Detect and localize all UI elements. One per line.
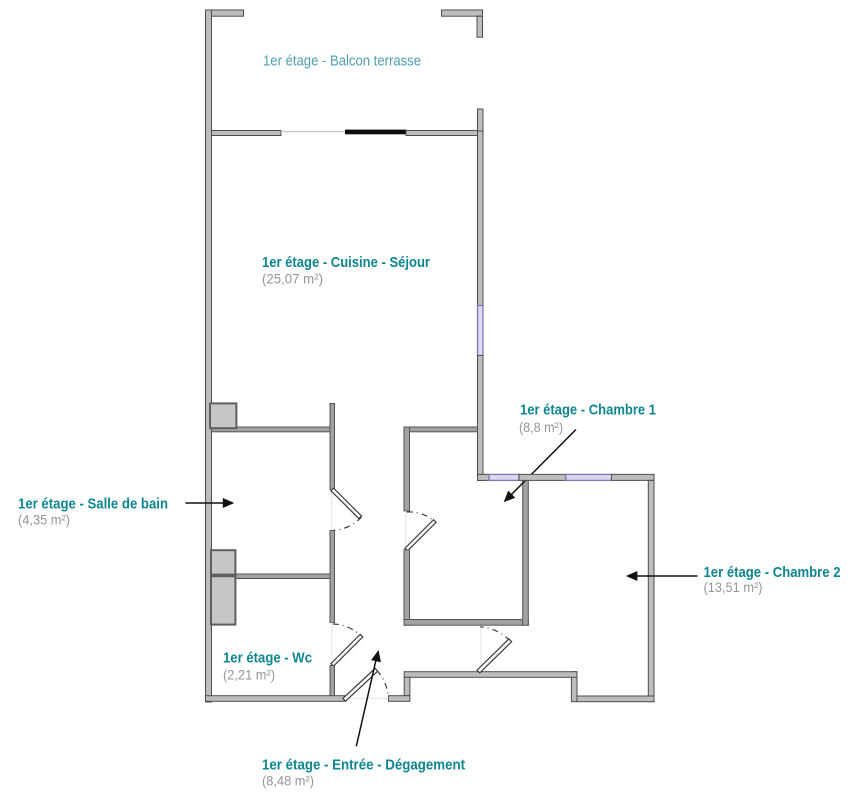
svg-text:(4,35 m²): (4,35 m²) bbox=[18, 513, 70, 528]
svg-text:1er étage - Salle de bain: 1er étage - Salle de bain bbox=[18, 496, 168, 513]
svg-text:1er étage - Chambre 2: 1er étage - Chambre 2 bbox=[704, 564, 841, 581]
svg-text:(2,21 m²): (2,21 m²) bbox=[223, 668, 275, 683]
svg-text:1er étage - Balcon terrasse: 1er étage - Balcon terrasse bbox=[263, 54, 421, 70]
svg-text:1er étage - Entrée - Dégagemen: 1er étage - Entrée - Dégagement bbox=[262, 757, 465, 774]
svg-text:(25,07 m²): (25,07 m²) bbox=[262, 272, 323, 287]
svg-text:(8,48 m²): (8,48 m²) bbox=[262, 774, 314, 789]
svg-text:(13,51 m²): (13,51 m²) bbox=[704, 580, 763, 595]
svg-text:(8,8 m²): (8,8 m²) bbox=[519, 420, 563, 435]
svg-text:1er étage - Chambre 1: 1er étage - Chambre 1 bbox=[520, 402, 656, 419]
svg-text:1er étage - Cuisine - Séjour: 1er étage - Cuisine - Séjour bbox=[262, 254, 430, 271]
svg-text:1er étage - Wc: 1er étage - Wc bbox=[223, 650, 312, 667]
